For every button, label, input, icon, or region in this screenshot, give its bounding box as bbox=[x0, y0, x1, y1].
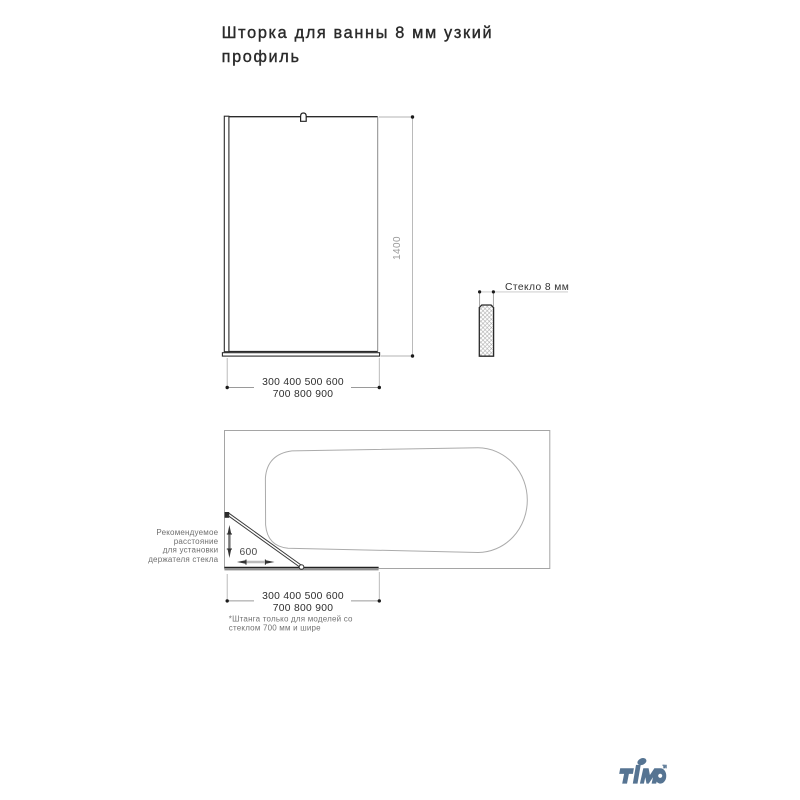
svg-text:Шторка для ванны 8 мм узкий: Шторка для ванны 8 мм узкий bbox=[222, 24, 494, 42]
svg-text:700 800 900: 700 800 900 bbox=[273, 603, 334, 614]
svg-text:стеклом 700 мм и шире: стеклом 700 мм и шире bbox=[229, 624, 321, 633]
svg-text:держателя стекла: держателя стекла bbox=[148, 555, 218, 564]
svg-text:1400: 1400 bbox=[392, 236, 403, 260]
svg-text:профиль: профиль bbox=[222, 48, 301, 66]
svg-text:600: 600 bbox=[239, 547, 257, 558]
svg-text:700 800 900: 700 800 900 bbox=[273, 389, 334, 400]
svg-text:300 400 500 600: 300 400 500 600 bbox=[262, 377, 344, 388]
svg-text:для установки: для установки bbox=[163, 545, 219, 554]
svg-text:Рекомендуемое: Рекомендуемое bbox=[156, 528, 218, 537]
svg-text:300 400 500 600: 300 400 500 600 bbox=[262, 591, 344, 602]
svg-text:*Штанга только для моделей со: *Штанга только для моделей со bbox=[229, 615, 353, 624]
svg-text:Стекло 8 мм: Стекло 8 мм bbox=[505, 282, 569, 293]
